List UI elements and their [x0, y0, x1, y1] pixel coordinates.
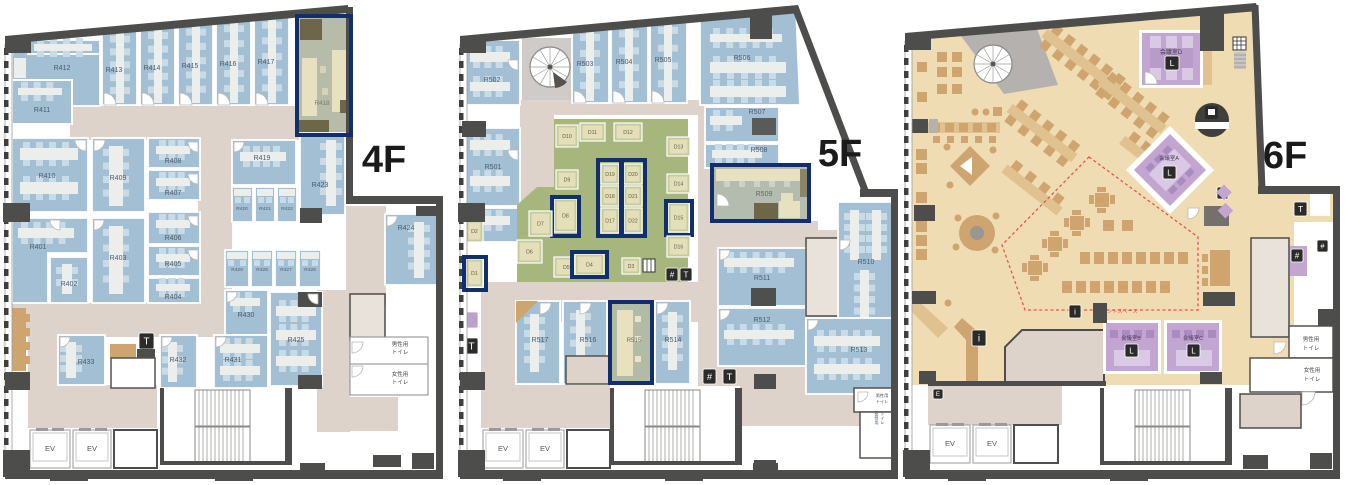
- svg-text:#: #: [1295, 251, 1300, 260]
- svg-text:R423: R423: [312, 182, 329, 189]
- svg-text:D2: D2: [471, 229, 478, 235]
- svg-text:R424: R424: [398, 225, 415, 232]
- svg-text:T: T: [143, 337, 149, 348]
- svg-text:R419: R419: [254, 155, 271, 162]
- svg-text:R504: R504: [616, 59, 633, 66]
- svg-text:R508: R508: [751, 147, 768, 154]
- svg-text:会議室D: 会議室D: [1160, 48, 1183, 56]
- svg-text:R401: R401: [30, 244, 47, 251]
- svg-text:T: T: [468, 342, 474, 353]
- svg-text:L: L: [1167, 168, 1172, 177]
- svg-text:R421: R421: [259, 206, 271, 212]
- svg-text:i: i: [1074, 307, 1076, 316]
- svg-text:R409: R409: [110, 175, 127, 182]
- svg-text:女性用: 女性用: [392, 370, 409, 378]
- svg-text:R410: R410: [39, 173, 56, 180]
- svg-text:R511: R511: [754, 275, 770, 282]
- svg-text:R516: R516: [580, 337, 597, 344]
- svg-text:女性用: 女性用: [1304, 366, 1321, 374]
- svg-text:D22: D22: [628, 219, 638, 225]
- svg-text:R417: R417: [258, 59, 275, 66]
- svg-text:R426: R426: [304, 267, 316, 273]
- svg-text:D1: D1: [471, 271, 478, 277]
- svg-text:R415: R415: [182, 63, 199, 70]
- svg-text:D8: D8: [562, 214, 569, 220]
- svg-text:R402: R402: [61, 281, 78, 288]
- svg-text:D18: D18: [605, 194, 615, 200]
- svg-text:R430: R430: [238, 312, 255, 319]
- svg-text:L: L: [1129, 346, 1134, 355]
- svg-text:R509: R509: [756, 191, 773, 198]
- svg-text:D7: D7: [537, 222, 544, 228]
- svg-text:EV: EV: [540, 444, 550, 453]
- svg-text:R429: R429: [231, 267, 243, 273]
- svg-text:トイレ: トイレ: [1304, 377, 1321, 383]
- svg-text:R413: R413: [106, 67, 123, 74]
- svg-text:R515: R515: [627, 337, 642, 344]
- svg-text:R507: R507: [749, 109, 766, 116]
- svg-text:トイレ: トイレ: [876, 399, 889, 404]
- svg-text:R503: R503: [577, 61, 594, 68]
- svg-text:R506: R506: [734, 55, 751, 62]
- svg-text:D13: D13: [674, 145, 684, 151]
- svg-text:男性用: 男性用: [876, 392, 889, 399]
- svg-text:E: E: [936, 391, 940, 398]
- svg-text:R427: R427: [280, 267, 292, 273]
- svg-text:EV: EV: [945, 439, 955, 448]
- svg-text:#: #: [670, 270, 675, 279]
- svg-text:D5: D5: [563, 265, 570, 271]
- svg-text:R422: R422: [281, 206, 293, 212]
- svg-text:#: #: [707, 372, 713, 382]
- svg-text:EV: EV: [87, 444, 97, 453]
- svg-text:トイレ: トイレ: [392, 350, 409, 356]
- svg-text:R404: R404: [165, 294, 182, 301]
- svg-text:D10: D10: [562, 134, 572, 140]
- svg-text:R514: R514: [665, 337, 682, 344]
- svg-text:5F: 5F: [818, 133, 862, 175]
- svg-text:D17: D17: [605, 219, 615, 225]
- svg-text:R420: R420: [236, 206, 248, 212]
- svg-text:R408: R408: [165, 158, 182, 165]
- svg-text:L: L: [1170, 58, 1175, 68]
- svg-text:トイレ: トイレ: [392, 380, 409, 386]
- svg-text:R407: R407: [165, 190, 182, 197]
- svg-text:D21: D21: [628, 194, 638, 200]
- svg-text:R428: R428: [256, 267, 268, 273]
- svg-text:L: L: [1191, 346, 1196, 355]
- svg-text:R425: R425: [288, 337, 305, 344]
- svg-text:D19: D19: [605, 172, 615, 178]
- svg-text:R414: R414: [144, 65, 161, 72]
- svg-text:EV: EV: [987, 439, 997, 448]
- svg-text:R502: R502: [484, 77, 501, 84]
- svg-text:R405: R405: [165, 261, 182, 268]
- svg-text:R433: R433: [78, 359, 95, 366]
- svg-text:R505: R505: [655, 57, 672, 64]
- svg-text:R512: R512: [754, 317, 771, 324]
- svg-text:EV: EV: [498, 444, 508, 453]
- svg-text:D3: D3: [628, 264, 635, 270]
- svg-text:トイレ: トイレ: [1303, 346, 1320, 352]
- svg-text:T: T: [727, 372, 733, 382]
- svg-text:R501: R501: [485, 164, 502, 171]
- svg-text:D15: D15: [674, 216, 684, 222]
- svg-text:D6: D6: [526, 250, 533, 256]
- svg-text:女性用: 女性用: [875, 410, 880, 425]
- svg-text:R510: R510: [858, 259, 875, 266]
- svg-text:会議室B: 会議室B: [1121, 334, 1141, 342]
- svg-text:R412: R412: [54, 65, 71, 72]
- svg-text:D4: D4: [586, 263, 593, 269]
- svg-text:D16: D16: [674, 245, 684, 251]
- svg-text:R416: R416: [220, 61, 237, 68]
- svg-text:R411: R411: [34, 107, 50, 114]
- svg-text:D14: D14: [674, 182, 684, 188]
- svg-text:EV: EV: [45, 444, 55, 453]
- svg-text:T: T: [1298, 204, 1304, 214]
- svg-text:D20: D20: [628, 172, 638, 178]
- svg-text:R431: R431: [225, 357, 242, 364]
- svg-text:D12: D12: [623, 130, 633, 136]
- svg-text:トイレ: トイレ: [881, 412, 886, 425]
- svg-text:R517: R517: [532, 337, 549, 344]
- svg-text:R432: R432: [170, 357, 187, 364]
- svg-text:会議室A: 会議室A: [1159, 154, 1179, 162]
- svg-text:男性用: 男性用: [1303, 335, 1320, 343]
- svg-text:6F: 6F: [1263, 135, 1307, 177]
- svg-text:R513: R513: [851, 347, 868, 354]
- svg-text:i: i: [978, 334, 980, 345]
- svg-text:男性用: 男性用: [392, 340, 409, 348]
- svg-text:4F: 4F: [362, 139, 406, 181]
- svg-text:会議室C: 会議室C: [1183, 334, 1203, 342]
- svg-text:D11: D11: [588, 130, 597, 136]
- svg-text:D9: D9: [564, 178, 571, 184]
- svg-text:R403: R403: [110, 255, 127, 262]
- svg-text:T: T: [684, 270, 689, 279]
- svg-text:R406: R406: [165, 235, 182, 242]
- svg-text:R418: R418: [315, 100, 330, 107]
